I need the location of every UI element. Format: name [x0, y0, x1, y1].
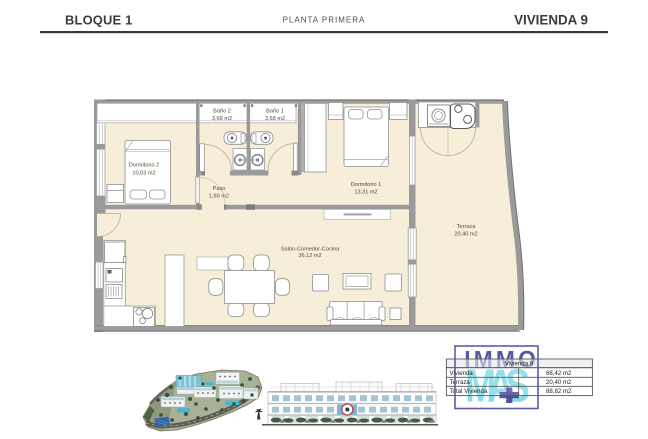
svg-text:Baño 1: Baño 1	[266, 109, 284, 115]
svg-text:3,68 m2: 3,68 m2	[265, 116, 285, 122]
svg-text:Paso: Paso	[213, 186, 226, 192]
svg-text:36,12 m2: 36,12 m2	[298, 253, 321, 259]
svg-text:Salón-Comedor-Cocina: Salón-Comedor-Cocina	[281, 247, 340, 253]
svg-text:Terraza: Terraza	[457, 224, 477, 230]
svg-text:PLANTA PRIMERA: PLANTA PRIMERA	[283, 15, 366, 24]
svg-text:20,40 m2: 20,40 m2	[454, 232, 477, 238]
svg-text:88,82 m2: 88,82 m2	[546, 388, 572, 395]
svg-text:Dormitorio 2: Dormitorio 2	[129, 163, 159, 169]
svg-text:Dormitorio 1: Dormitorio 1	[351, 182, 381, 188]
svg-text:Vivienda: Vivienda	[450, 370, 474, 377]
svg-text:13,31 m2: 13,31 m2	[354, 190, 377, 196]
svg-text:Vivienda 9: Vivienda 9	[505, 360, 534, 367]
svg-text:VIVIENDA 9: VIVIENDA 9	[514, 13, 588, 28]
svg-text:68,42 m2: 68,42 m2	[546, 370, 572, 377]
svg-text:BLOQUE 1: BLOQUE 1	[65, 13, 133, 28]
svg-text:20,40 m2: 20,40 m2	[546, 379, 572, 386]
svg-text:1,60 m2: 1,60 m2	[209, 194, 229, 200]
svg-text:Baño 2: Baño 2	[213, 109, 231, 115]
svg-text:Terraza: Terraza	[450, 379, 471, 386]
svg-text:10,03 m2: 10,03 m2	[132, 171, 155, 177]
svg-text:3,68 m2: 3,68 m2	[212, 116, 232, 122]
